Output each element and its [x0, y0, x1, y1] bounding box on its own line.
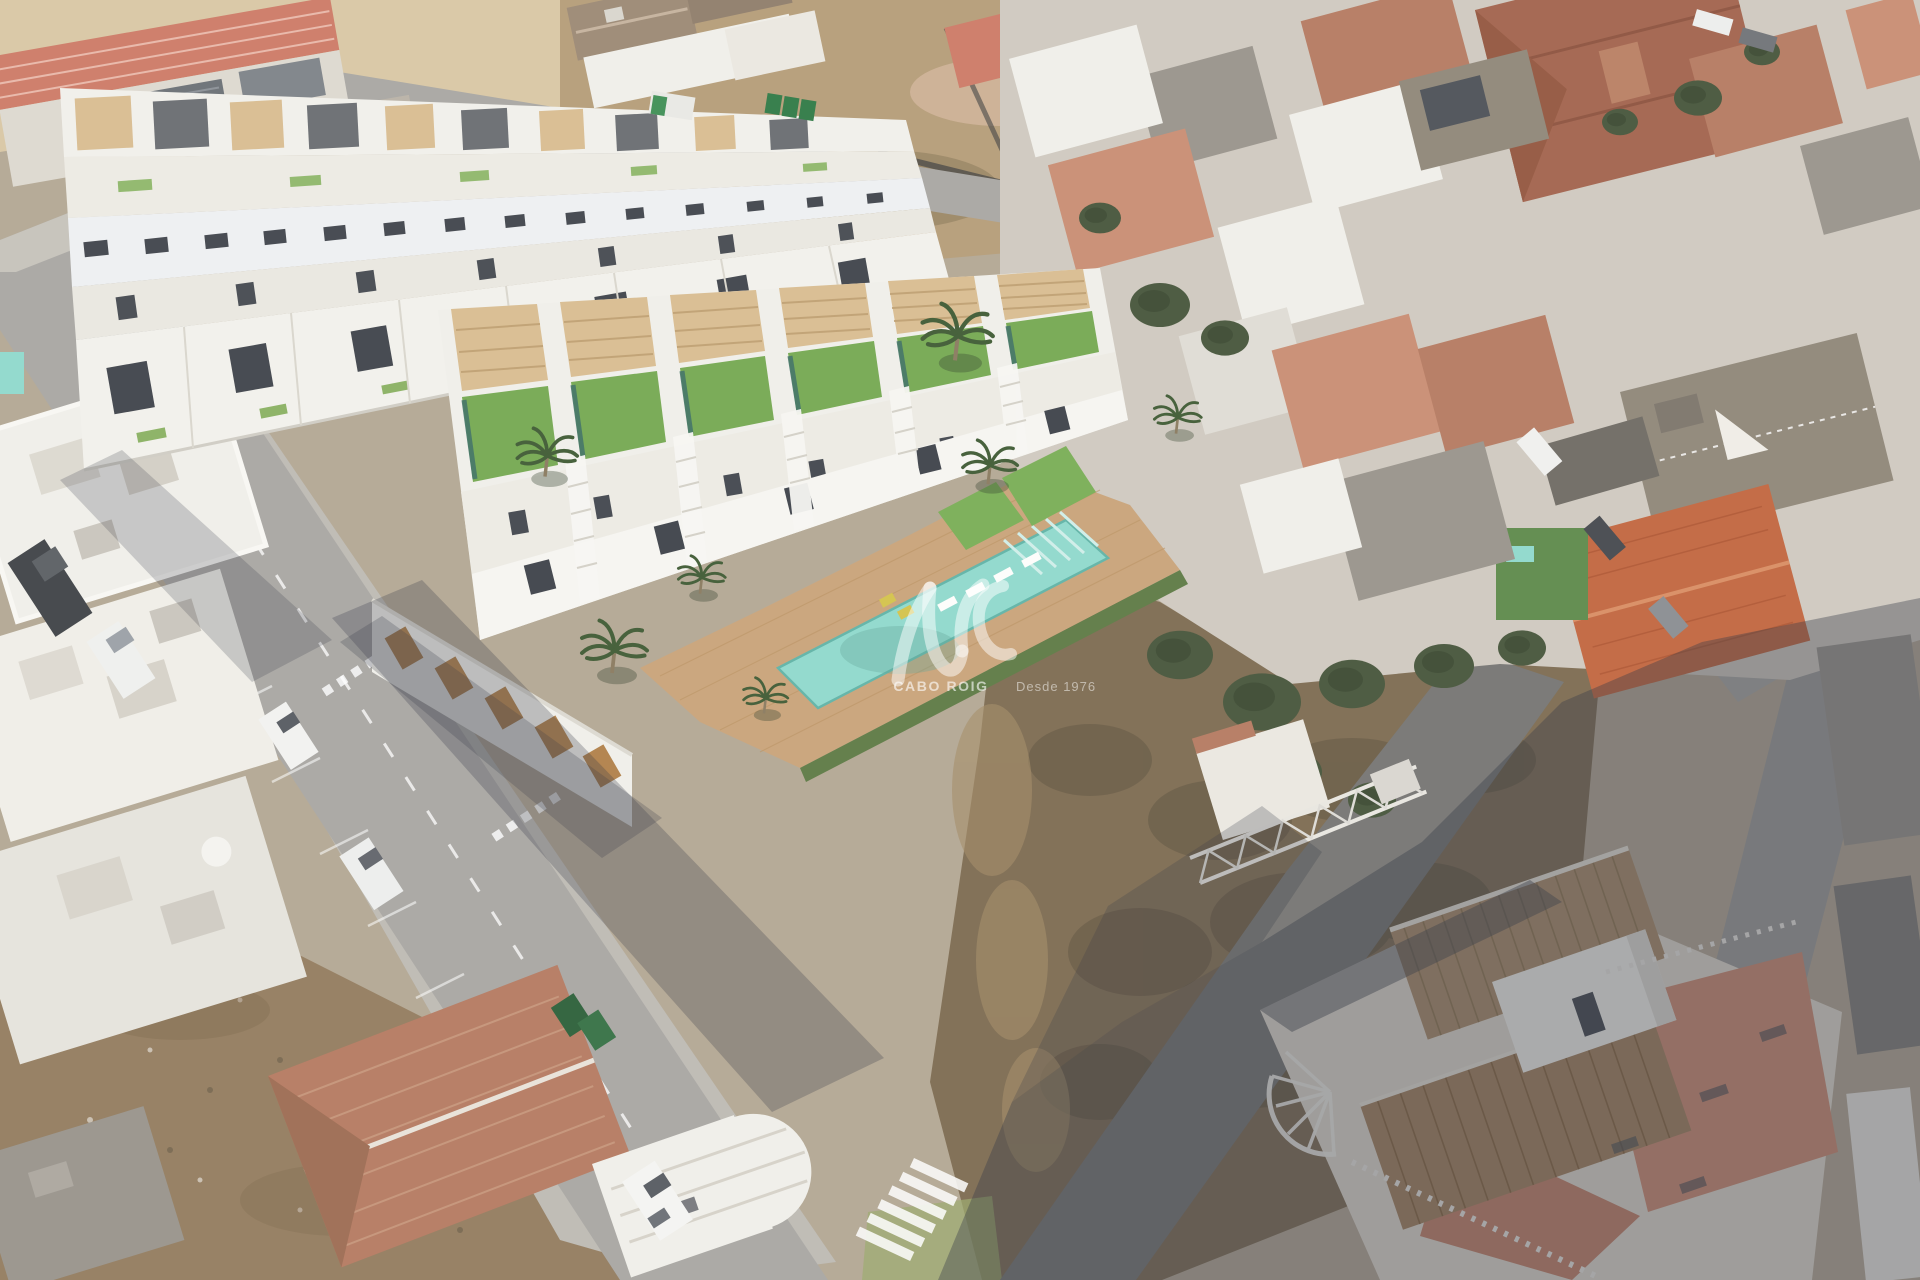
- aerial-scene: CABO ROIG Desde 1976: [0, 0, 1920, 1280]
- watermark-brand: CABO ROIG: [893, 678, 988, 694]
- aerial-render-screenshot: CABO ROIG Desde 1976: [0, 0, 1920, 1280]
- watermark-since: Desde 1976: [1016, 679, 1096, 694]
